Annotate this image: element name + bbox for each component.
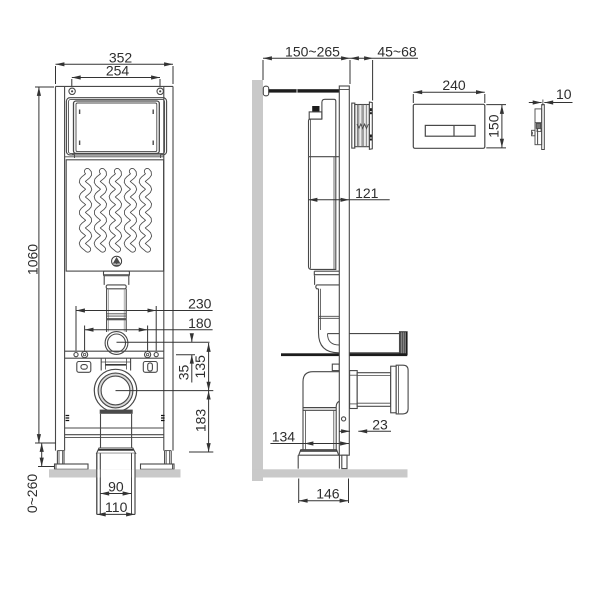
svg-text:110: 110 xyxy=(105,499,128,515)
svg-text:134: 134 xyxy=(272,429,296,445)
svg-text:230: 230 xyxy=(188,296,212,312)
svg-text:150~265: 150~265 xyxy=(285,43,340,59)
svg-text:180: 180 xyxy=(188,315,212,331)
svg-text:45~68: 45~68 xyxy=(377,43,417,59)
svg-text:150: 150 xyxy=(486,114,502,138)
svg-text:146: 146 xyxy=(316,486,340,502)
svg-text:135: 135 xyxy=(192,355,208,379)
svg-text:90: 90 xyxy=(108,479,124,495)
svg-text:10: 10 xyxy=(556,86,572,102)
svg-text:254: 254 xyxy=(106,63,130,79)
svg-text:240: 240 xyxy=(442,77,466,93)
svg-text:183: 183 xyxy=(193,409,209,433)
svg-text:0~260: 0~260 xyxy=(24,474,40,514)
svg-text:23: 23 xyxy=(372,416,388,432)
svg-text:35: 35 xyxy=(176,365,192,381)
svg-text:121: 121 xyxy=(355,185,379,201)
svg-text:1060: 1060 xyxy=(25,244,41,275)
